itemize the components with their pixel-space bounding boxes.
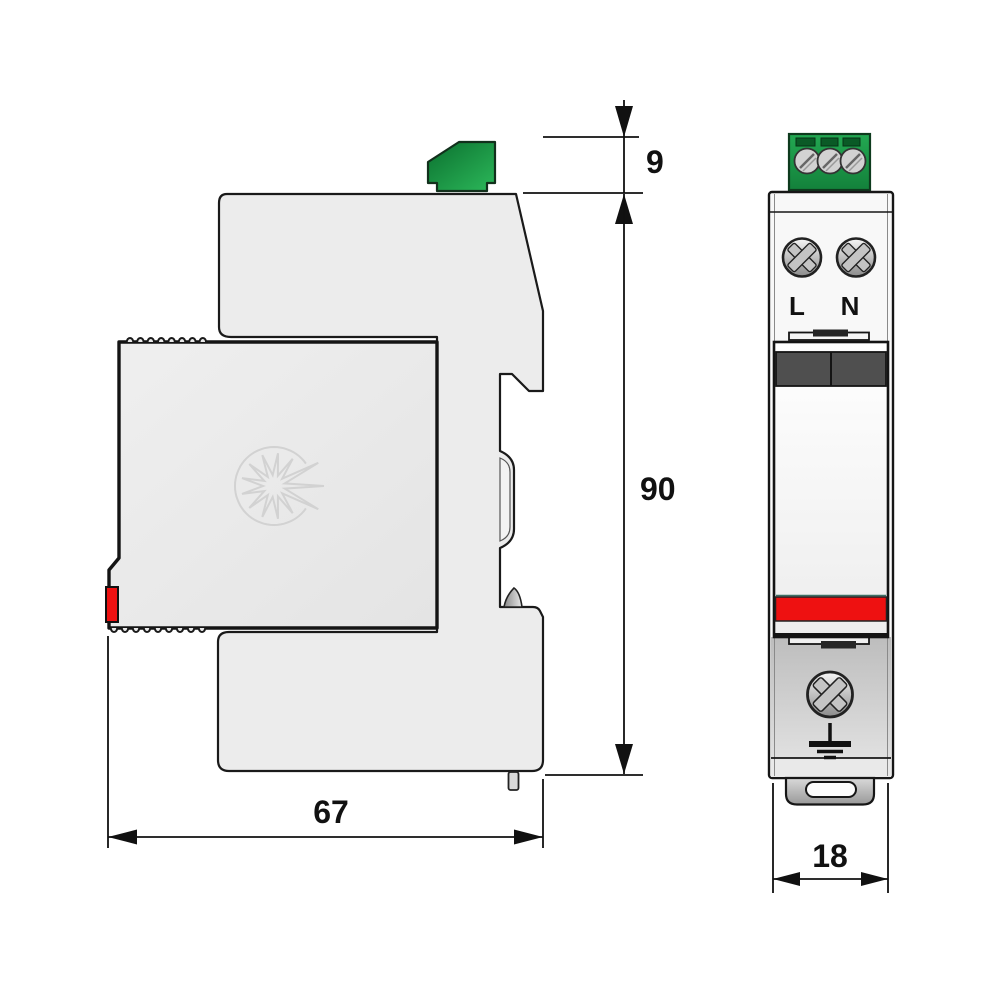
green-terminal-front (789, 134, 870, 190)
arrow-down-icon (615, 106, 633, 137)
din-clip (786, 778, 874, 805)
terminal-screw-icon (841, 149, 866, 174)
red-status-band (776, 597, 887, 621)
wire-slot (843, 138, 860, 146)
bottom-pin (509, 772, 519, 790)
din-clip-spring (504, 588, 522, 607)
wire-slot (821, 138, 838, 146)
arrow-left-icon (108, 830, 137, 845)
din-rail-catch (500, 458, 510, 541)
terminal-label-n: N (841, 291, 860, 321)
din-clip-slot (806, 782, 856, 797)
side-view (106, 142, 543, 790)
arrow-right-icon (514, 830, 543, 845)
front-bottom-strip (771, 759, 891, 777)
terminal-screw-icon (795, 149, 820, 174)
plug-in-module (109, 342, 437, 628)
front-view: L N (769, 134, 893, 805)
terminal-screw-icon (818, 149, 843, 174)
green-terminal-side (428, 142, 495, 191)
wire-slot (796, 138, 815, 146)
terminal-label-l: L (789, 291, 805, 321)
red-status-indicator (106, 587, 118, 622)
dim-label-18: 18 (812, 838, 848, 874)
dimension-body-height: 90 (545, 194, 676, 775)
arrow-right-icon (861, 872, 888, 886)
arrow-left-icon (773, 872, 800, 886)
dim-label-67: 67 (313, 794, 349, 830)
dimensional-drawing: L N (0, 0, 1000, 1000)
dimension-terminal-height: 9 (523, 100, 664, 224)
drawing-canvas: L N (0, 0, 1000, 1000)
arrow-down-icon (615, 744, 633, 774)
dim-label-90: 90 (640, 471, 676, 507)
dim-label-9: 9 (646, 144, 664, 180)
front-module (774, 342, 888, 637)
